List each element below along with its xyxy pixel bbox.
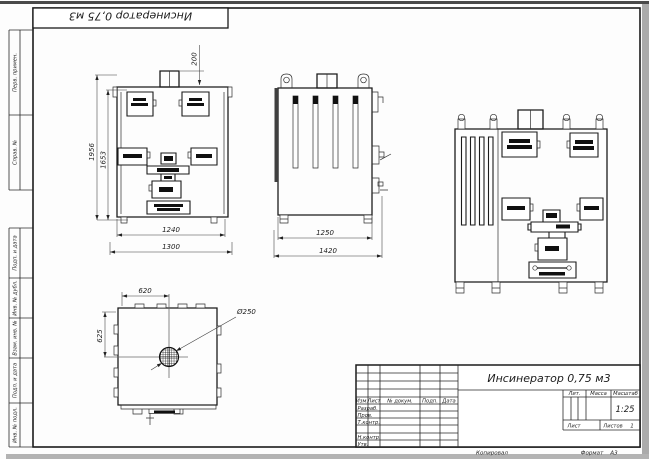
row-utv: Утв. bbox=[358, 442, 369, 448]
margin-label-inv-no-podl: Инв. № подл. bbox=[13, 407, 19, 443]
col-data: Дата bbox=[441, 399, 455, 405]
lit-label: Лит. bbox=[568, 391, 581, 397]
dim-text-1653: 1653 bbox=[100, 151, 108, 169]
massa-label: Масса bbox=[590, 391, 607, 397]
margin-label-sprav-no: Справ. № bbox=[13, 140, 19, 165]
list-label: Лист bbox=[566, 424, 581, 430]
kopiroval-label: Копировал bbox=[476, 451, 508, 457]
scale-value: 1:25 bbox=[615, 405, 634, 415]
format-value: А3 bbox=[609, 451, 618, 457]
corner-stamp-text: Инсинератор 0,75 м3 bbox=[69, 10, 192, 23]
page-edge-top bbox=[0, 1, 649, 4]
dim-text-flue-diameter: Ø250 bbox=[236, 308, 256, 316]
row-t-kontr: Т.контр. bbox=[358, 420, 380, 426]
margin-label-inv-no-dubl: Инв. № дубл. bbox=[13, 280, 19, 316]
drawing-sheet: Перв. примен. Справ. № Подп. и дата Инв.… bbox=[0, 0, 649, 459]
col-n-docum: № докум. bbox=[386, 399, 413, 405]
listov-label: Листов bbox=[602, 424, 622, 430]
listov-value: 1 bbox=[630, 424, 634, 430]
page-shadow-right bbox=[642, 4, 649, 459]
corner-stamp: Инсинератор 0,75 м3 bbox=[33, 8, 228, 28]
drawing-canvas: Перв. примен. Справ. № Подп. и дата Инв.… bbox=[0, 0, 649, 459]
format-label: Формат bbox=[581, 451, 604, 457]
col-list: Лист bbox=[366, 399, 381, 405]
row-razrab: Разраб. bbox=[358, 406, 378, 412]
row-n-kontr: Н.контр. bbox=[358, 435, 381, 441]
handle-bar-top bbox=[154, 411, 175, 414]
dim-text-1956: 1956 bbox=[88, 143, 96, 161]
margin-label-podp-i-data-1: Подп. и дата bbox=[13, 235, 19, 270]
page-shadow-bottom bbox=[6, 454, 649, 459]
col-izm: Изм. bbox=[356, 399, 368, 405]
margin-label-perv-primen: Перв. примен. bbox=[13, 53, 19, 92]
col-podp: Подп. bbox=[422, 399, 438, 405]
dim-text-620: 620 bbox=[138, 287, 152, 295]
flue-opening bbox=[160, 348, 179, 367]
row-prov: Пров. bbox=[358, 413, 373, 419]
dim-text-200: 200 bbox=[191, 52, 199, 66]
dim-text-1250: 1250 bbox=[316, 229, 334, 237]
side-edge-panel bbox=[275, 88, 279, 182]
dim-text-1420: 1420 bbox=[319, 247, 337, 255]
title-block: Инсинератор 0,75 м3 Изм. Лист № докум. П… bbox=[356, 365, 640, 448]
masshtab-label: Масштаб bbox=[613, 391, 638, 397]
margin-label-vzam-inv-no: Взам. инв. № bbox=[13, 320, 19, 355]
title-block-doc-title: Инсинератор 0,75 м3 bbox=[487, 372, 610, 385]
margin-label-podp-i-data-2: Подп. и дата bbox=[13, 363, 19, 398]
dim-text-625: 625 bbox=[96, 329, 104, 343]
dim-text-1300: 1300 bbox=[162, 243, 180, 251]
dim-text-1240: 1240 bbox=[162, 226, 180, 234]
